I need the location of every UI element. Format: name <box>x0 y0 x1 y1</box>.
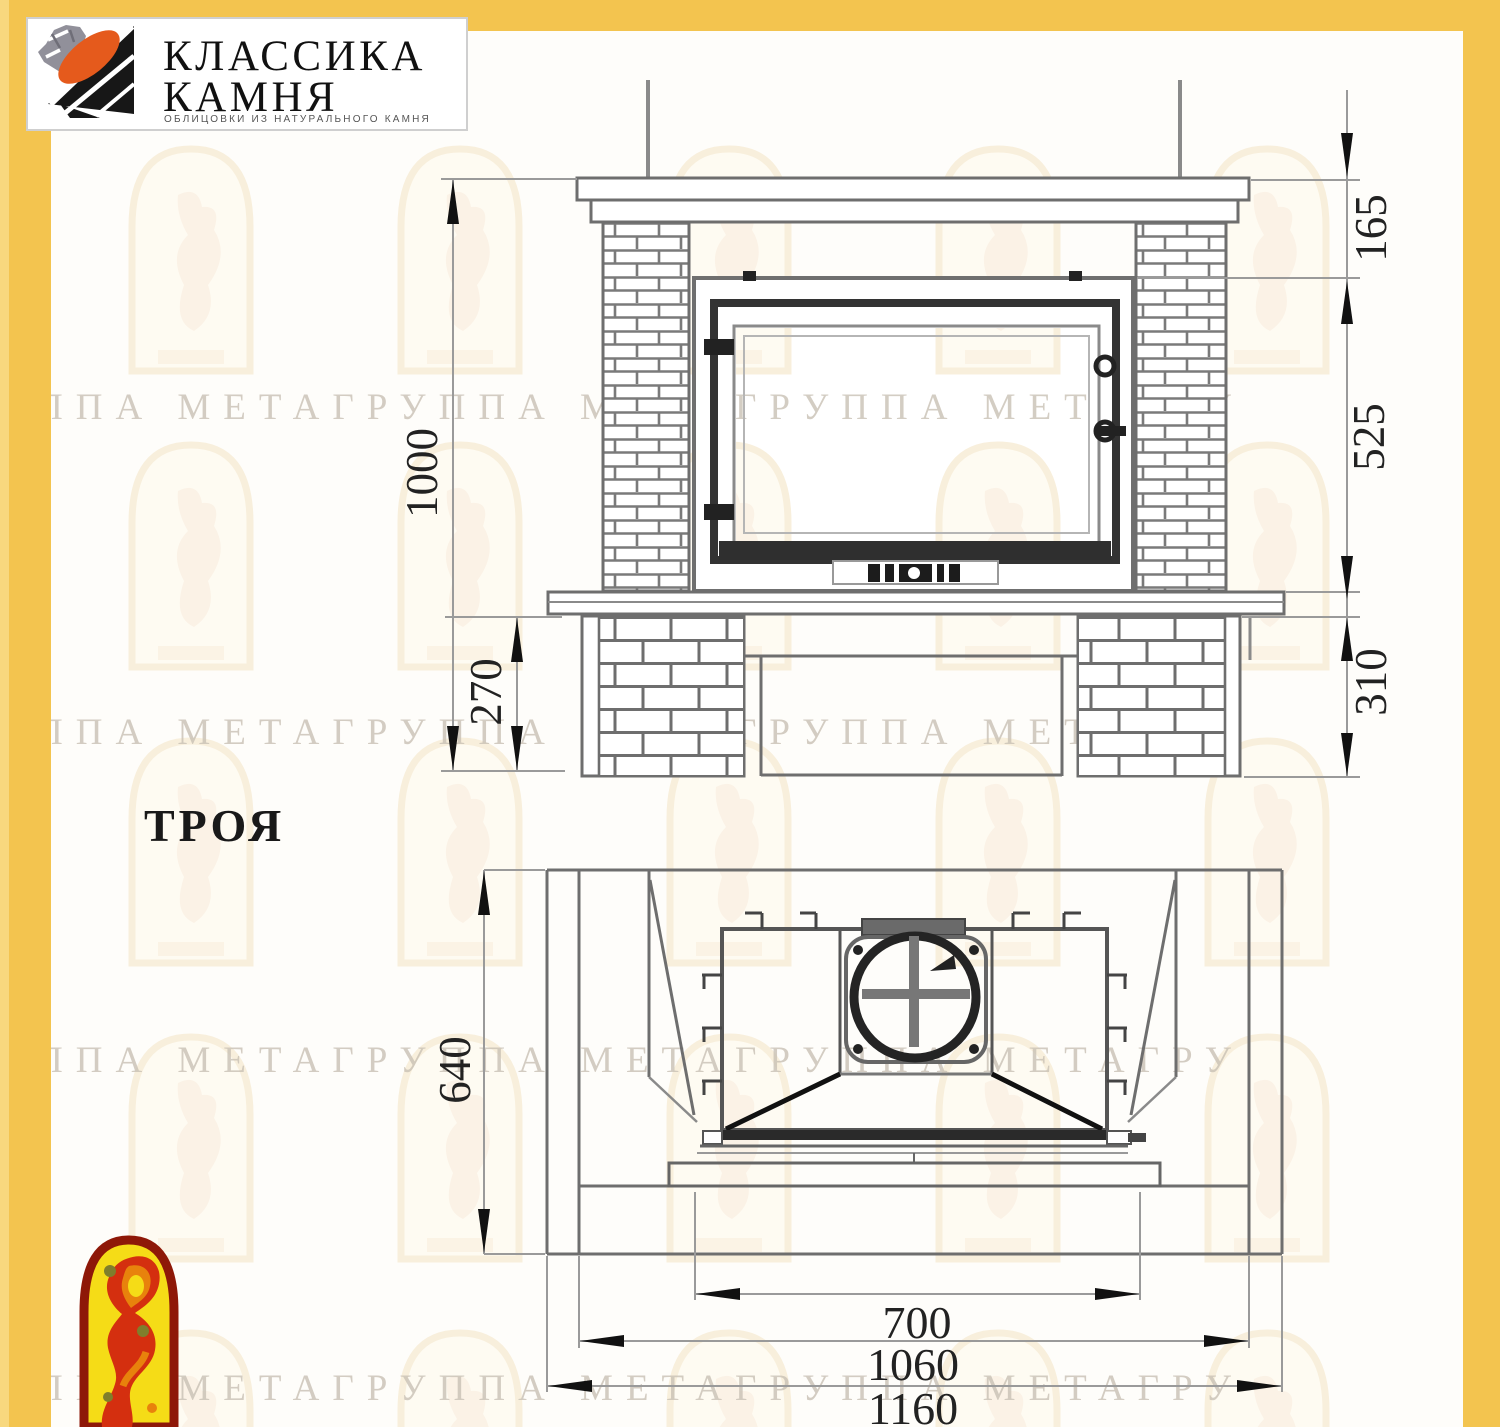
svg-text:310: 310 <box>1346 648 1396 716</box>
svg-text:1160: 1160 <box>868 1383 958 1427</box>
svg-text:270: 270 <box>461 658 511 726</box>
svg-text:525: 525 <box>1344 403 1394 471</box>
svg-text:1000: 1000 <box>397 428 447 518</box>
svg-text:ОБЛИЦОВКИ ИЗ НАТУРАЛЬНОГО КАМН: ОБЛИЦОВКИ ИЗ НАТУРАЛЬНОГО КАМНЯ <box>164 114 431 125</box>
svg-text:640: 640 <box>430 1036 480 1104</box>
svg-text:КЛАССИКА: КЛАССИКА <box>163 33 426 80</box>
svg-text:165: 165 <box>1346 194 1396 262</box>
